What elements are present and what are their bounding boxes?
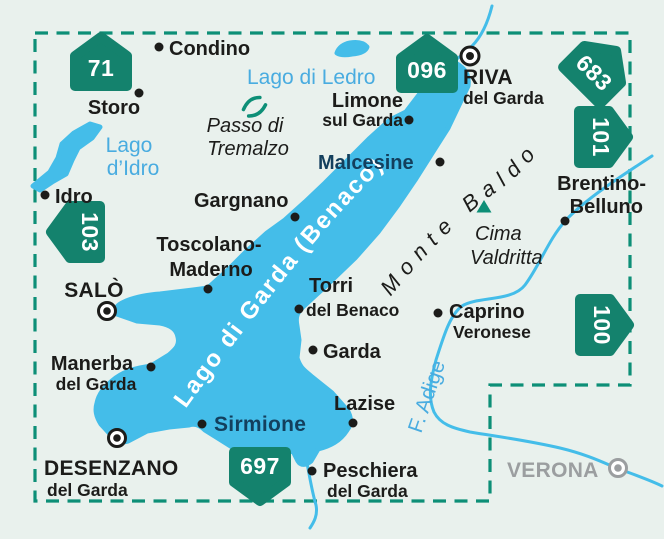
city-marker-desenzano [109,430,126,447]
town-dot-idro [41,191,50,200]
town-label-storo: Storo [88,97,140,119]
town-label-desenzano: DESENZANO [44,457,179,480]
town-dot-condino [155,43,164,52]
terrain-label-cima-2: Valdritta [470,247,543,269]
map-badge-71: 71 [75,37,127,86]
town-label-garda: Garda [323,341,382,363]
map-badge-100: 100 [580,299,629,351]
town-label-sirmione: Sirmione [214,413,306,436]
badge-number: 100 [589,305,615,345]
town-dot-manerba [147,363,156,372]
town-dot-torri-del-benaco [295,305,304,314]
town-label-gargnano: Gargnano [194,190,288,212]
town-label-toscolano: Toscolano- [156,234,261,256]
town-label-torri-2: del Benaco [306,300,399,320]
town-label-manerba: Manerba [51,353,134,375]
town-dot-garda [309,346,318,355]
badge-number: 103 [77,212,103,252]
town-label-limone: Limone [332,90,403,112]
town-label-brentino-2: Belluno [570,196,643,218]
town-dot-limone [405,116,414,125]
town-label-brentino: Brentino- [557,173,646,195]
town-label-caprino-2: Veronese [453,322,531,342]
city-marker-verona [610,460,627,477]
town-label-torri: Torri [309,275,353,297]
town-dot-sirmione [198,420,207,429]
terrain-label-passo-2: Tremalzo [207,138,289,160]
badge-number: 697 [240,453,280,479]
town-label-verona: VERONA [507,459,599,482]
water-label-lago-didro-2: d’Idro [107,157,160,180]
town-label-peschiera-2: del Garda [327,481,408,501]
terrain-label-passo: Passo di [207,115,284,137]
town-label-condino: Condino [169,38,250,60]
town-label-riva: RIVA [463,66,513,89]
town-dot-peschiera [308,467,317,476]
town-label-manerba-2: del Garda [56,374,137,394]
town-label-toscolano-2: Maderno [169,259,252,281]
badge-number: 71 [88,55,115,81]
town-dot-malcesine [436,158,445,167]
water-label-lago-di-ledro: Lago di Ledro [247,66,375,89]
town-label-salo: SALÒ [64,278,124,302]
kompass-map: Lago di Garda (Benaco) Monte Baldo 71 09… [0,0,664,539]
map-badge-101: 101 [579,111,628,163]
town-dot-lazise [349,419,358,428]
map-badge-096: 096 [401,39,453,88]
town-label-malcesine: Malcesine [318,152,414,174]
city-marker-riva [461,47,479,65]
town-dot-brentino-belluno [561,217,570,226]
town-dot-gargnano [291,213,300,222]
lago-di-ledro [337,43,367,55]
town-label-limone-2: sul Garda [322,110,403,130]
terrain-label-cima: Cima [475,223,522,245]
city-marker-salo [99,303,116,320]
map-badge-103: 103 [51,206,103,258]
badge-number: 101 [588,117,614,157]
map-badge-697: 697 [234,452,286,501]
town-label-peschiera: Peschiera [323,460,418,482]
town-label-riva-2: del Garda [463,88,544,108]
town-label-desenzano-2: del Garda [47,480,128,500]
badge-number: 096 [407,57,447,83]
town-label-caprino: Caprino [449,301,525,323]
town-label-idro: Idro [55,186,93,208]
water-label-lago-didro: Lago [106,134,153,157]
town-dot-caprino-veronese [434,309,443,318]
town-dot-toscolano-maderno [204,285,213,294]
town-label-lazise: Lazise [334,393,395,415]
